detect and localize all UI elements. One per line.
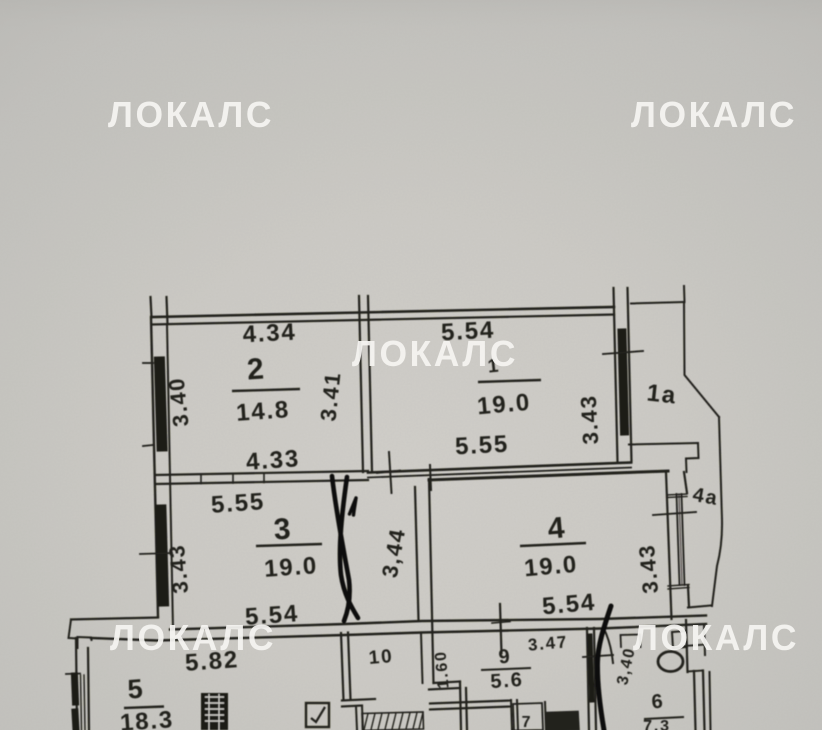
svg-text:3.43: 3.43 <box>576 394 604 445</box>
svg-text:1а: 1а <box>645 379 678 409</box>
svg-text:4: 4 <box>546 511 567 545</box>
svg-text:3.43: 3.43 <box>164 543 193 595</box>
svg-text:5.55: 5.55 <box>454 431 509 461</box>
svg-text:14.8: 14.8 <box>235 396 291 427</box>
svg-text:4а: 4а <box>691 484 720 510</box>
svg-text:3.43: 3.43 <box>634 543 663 595</box>
svg-text:4.33: 4.33 <box>245 445 301 476</box>
svg-text:2: 2 <box>246 352 267 386</box>
svg-text:19.0: 19.0 <box>263 552 319 583</box>
svg-text:5.6: 5.6 <box>490 669 525 693</box>
svg-text:ЛОКАЛС: ЛОКАЛС <box>110 617 276 658</box>
svg-text:5.55: 5.55 <box>210 488 266 519</box>
svg-text:3.41: 3.41 <box>315 370 345 422</box>
svg-text:5.54: 5.54 <box>541 589 597 621</box>
svg-text:18.3: 18.3 <box>119 706 175 730</box>
svg-text:3: 3 <box>273 512 294 546</box>
svg-text:19.0: 19.0 <box>476 389 532 421</box>
svg-text:7: 7 <box>522 714 533 730</box>
svg-text:19.0: 19.0 <box>523 551 579 583</box>
svg-text:1.60: 1.60 <box>432 650 452 690</box>
svg-text:6: 6 <box>651 690 666 713</box>
svg-text:3.47: 3.47 <box>527 632 569 654</box>
svg-text:ЛОКАЛС: ЛОКАЛС <box>352 333 518 374</box>
svg-text:10: 10 <box>368 646 394 669</box>
svg-text:9: 9 <box>498 645 513 668</box>
svg-text:ЛОКАЛС: ЛОКАЛС <box>108 94 274 135</box>
svg-text:3.40: 3.40 <box>163 376 193 428</box>
svg-text:ЛОКАЛС: ЛОКАЛС <box>633 617 799 658</box>
svg-text:4.34: 4.34 <box>242 319 297 349</box>
svg-text:ЛОКАЛС: ЛОКАЛС <box>631 94 797 135</box>
svg-text:5: 5 <box>127 673 146 704</box>
svg-text:7,3: 7,3 <box>643 718 671 730</box>
